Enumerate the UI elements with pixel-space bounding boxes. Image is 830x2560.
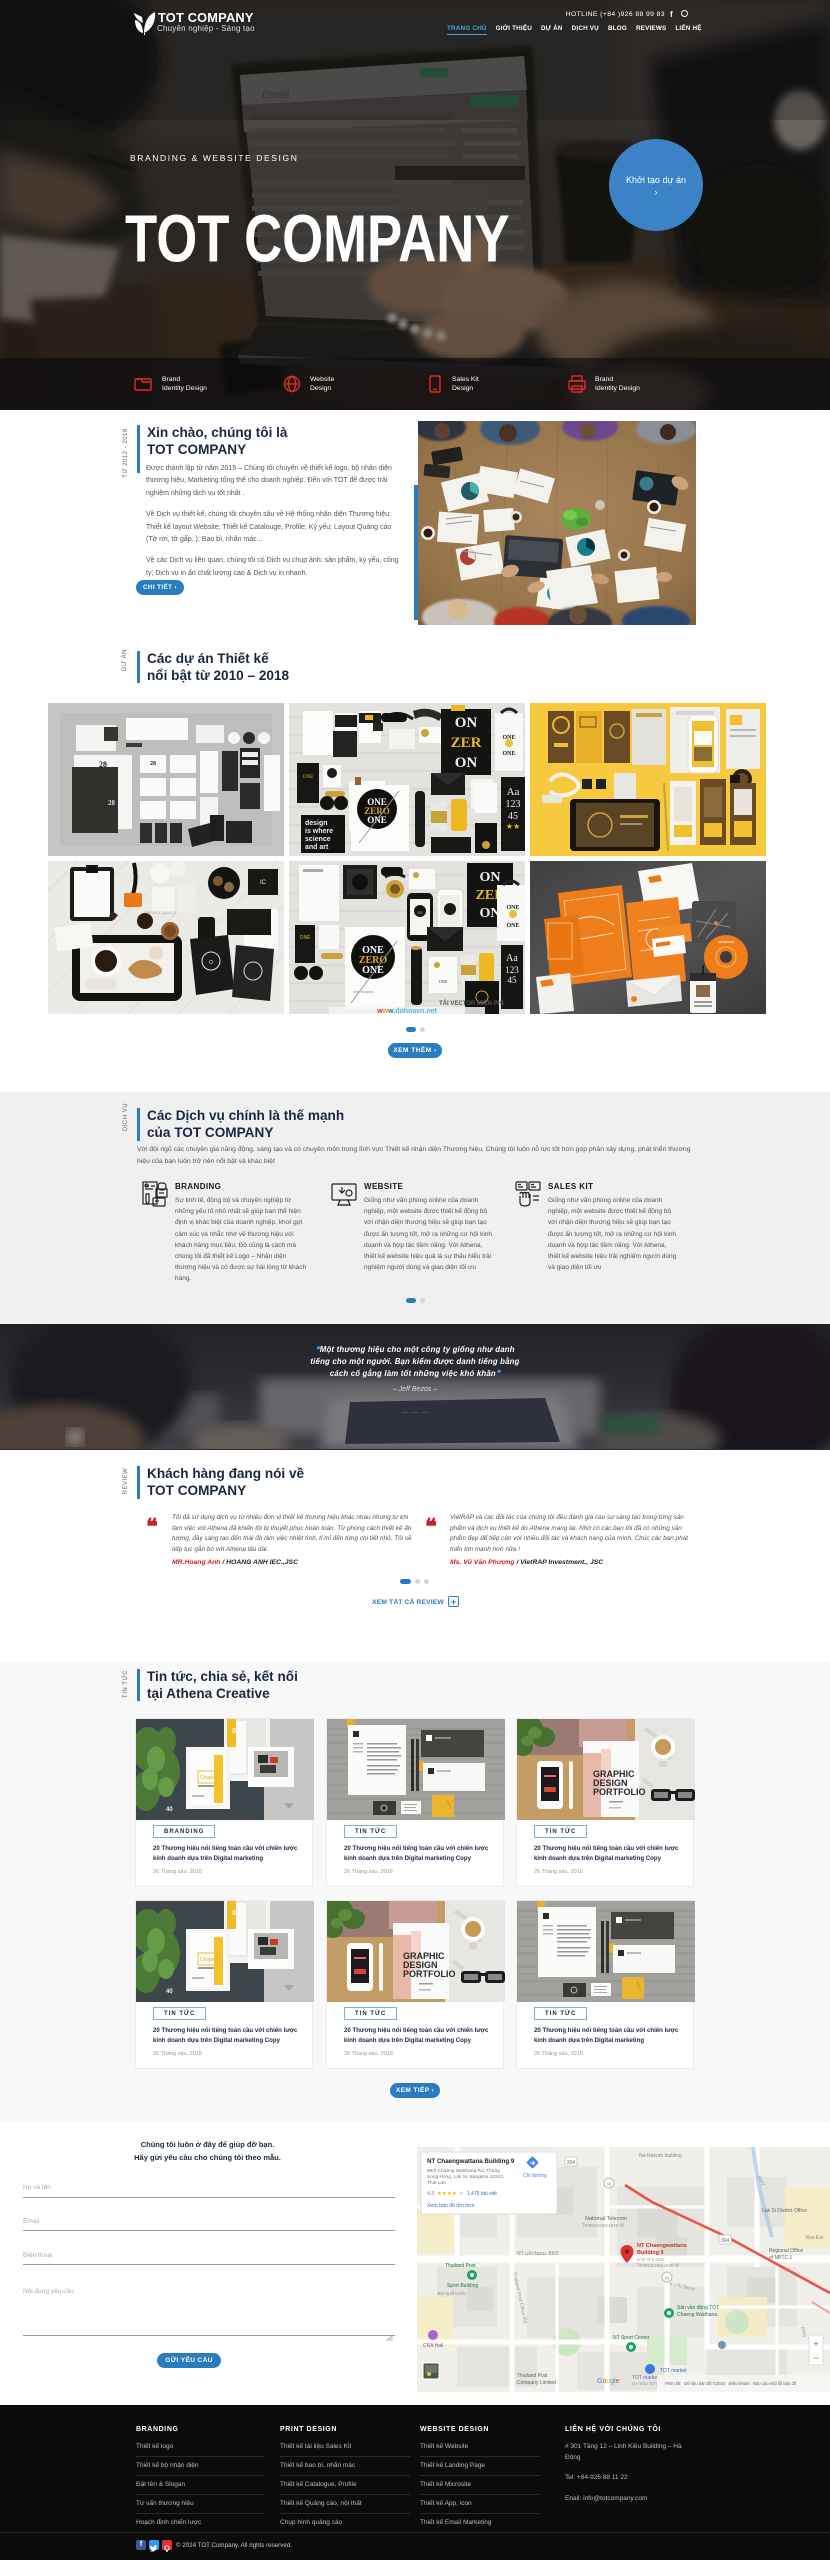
svg-text:Aa: Aa xyxy=(506,953,518,964)
svg-text:Chaeng Watthana: Chaeng Watthana xyxy=(677,2312,717,2318)
svg-text:NT Sport Center: NT Sport Center xyxy=(613,2335,650,2341)
svg-text:Lak Si District Office: Lak Si District Office xyxy=(762,2208,807,2214)
svg-text:โทรคมนาคมแห่งชาติ: โทรคมนาคมแห่งชาติ xyxy=(637,2262,679,2268)
svg-text:45: 45 xyxy=(508,811,518,822)
svg-text:NT Chaengwattana: NT Chaengwattana xyxy=(637,2243,687,2249)
svg-text:Song Hong, Lak Si, Bangkok 102: Song Hong, Lak Si, Bangkok 10210, xyxy=(427,2174,504,2180)
svg-text:Regional Office: Regional Office xyxy=(769,2248,803,2254)
svg-text:and art: and art xyxy=(305,844,329,851)
svg-text:123: 123 xyxy=(506,799,521,810)
svg-text:ONE: ONE xyxy=(300,935,312,941)
svg-text:M: M xyxy=(607,2182,611,2187)
svg-text:One hundred: One hundred xyxy=(353,990,373,994)
svg-text:45: 45 xyxy=(508,975,518,985)
svg-text:company: company xyxy=(718,939,734,944)
svg-text:NT แจ้งวัฒนะ B9/2: NT แจ้งวัฒนะ B9/2 xyxy=(517,2250,559,2257)
svg-text:ON: ON xyxy=(480,870,501,885)
svg-text:★★★★: ★★★★ xyxy=(437,2190,457,2197)
svg-text:CRA Hall: CRA Hall xyxy=(423,2343,443,2349)
svg-text:+: + xyxy=(813,2339,818,2349)
svg-text:ONE: ONE xyxy=(502,751,515,757)
svg-text:123: 123 xyxy=(505,965,519,975)
svg-text:ONE: ONE xyxy=(506,923,519,929)
svg-text:National Telecom: National Telecom xyxy=(585,2216,628,2222)
svg-text:Google: Google xyxy=(597,2378,620,2385)
svg-text:Thailand Post: Thailand Post xyxy=(445,2263,476,2269)
svg-text:Sân vận động TOT: Sân vận động TOT xyxy=(677,2305,719,2311)
svg-text:304: 304 xyxy=(721,2238,730,2244)
svg-text:★★: ★★ xyxy=(506,822,520,831)
svg-text:NT Chaengwattana Building 9: NT Chaengwattana Building 9 xyxy=(427,2158,515,2165)
svg-text:ON: ON xyxy=(455,755,478,771)
svg-text:ONE: ONE xyxy=(439,979,448,984)
svg-text:Visa Ext: Visa Ext xyxy=(805,2235,824,2241)
svg-text:Building 9: Building 9 xyxy=(637,2250,664,2256)
svg-text:www.dohoavn.net: www.dohoavn.net xyxy=(376,1008,437,1014)
svg-text:28: 28 xyxy=(150,761,156,767)
svg-text:Thailand Post: Thailand Post xyxy=(517,2373,548,2379)
svg-text:Thái Lan: Thái Lan xyxy=(427,2180,446,2186)
svg-text:★: ★ xyxy=(459,2190,464,2197)
svg-text:TOT market: TOT market xyxy=(660,2368,687,2374)
svg-text:Xem bản đồ lớn hơn: Xem bản đồ lớn hơn xyxy=(427,2203,475,2209)
svg-text:304: 304 xyxy=(567,2160,576,2166)
svg-text:Company Limited: Company Limited xyxy=(517,2380,556,2386)
svg-text:ONE: ONE xyxy=(303,775,313,780)
svg-text:IC: IC xyxy=(260,880,267,886)
svg-text:science: science xyxy=(305,836,331,843)
svg-text:M: M xyxy=(665,2276,669,2281)
svg-text:สนามเด็กเล่น: สนามเด็กเล่น xyxy=(437,2289,466,2297)
svg-text:design: design xyxy=(305,820,328,827)
svg-text:อาคาร 9 บมจ.: อาคาร 9 บมจ. xyxy=(637,2257,665,2262)
svg-text:Sport Building: Sport Building xyxy=(447,2283,478,2289)
svg-text:28: 28 xyxy=(108,799,116,807)
svg-text:ZR: ZR xyxy=(417,910,422,915)
svg-text:O: O xyxy=(209,960,213,966)
svg-text:Aa: Aa xyxy=(507,786,520,798)
svg-text:Chỉ đường: Chỉ đường xyxy=(523,2172,547,2179)
svg-text:of NBTC 1: of NBTC 1 xyxy=(769,2255,793,2261)
svg-text:−: − xyxy=(813,2353,818,2363)
svg-text:Phím tắt Dữ liệu bản đồ ©202: Phím tắt Dữ liệu bản đồ ©2024 Điều khoản… xyxy=(665,2381,797,2386)
svg-text:ตลาดนัด TOT: ตลาดนัด TOT xyxy=(632,2381,658,2386)
svg-text:is where: is where xyxy=(305,828,333,835)
svg-text:ONE: ONE xyxy=(362,965,384,976)
svg-text:Na-Nakorn building: Na-Nakorn building xyxy=(639,2153,682,2159)
svg-text:ZER: ZER xyxy=(451,735,482,751)
svg-text:โทรคมนาคมแห่งชาติ: โทรคมนาคมแห่งชาติ xyxy=(582,2222,624,2228)
svg-text:TẢI VECTOR MIỄN PHÍ: TẢI VECTOR MIỄN PHÍ xyxy=(439,999,504,1007)
svg-text:89/2 Chaeng Watthana Rd, Thung: 89/2 Chaeng Watthana Rd, Thung xyxy=(427,2168,500,2174)
svg-text:1.475 bài viết: 1.475 bài viết xyxy=(467,2191,497,2197)
svg-text:4,3: 4,3 xyxy=(427,2191,434,2197)
svg-text:ON: ON xyxy=(455,715,478,731)
